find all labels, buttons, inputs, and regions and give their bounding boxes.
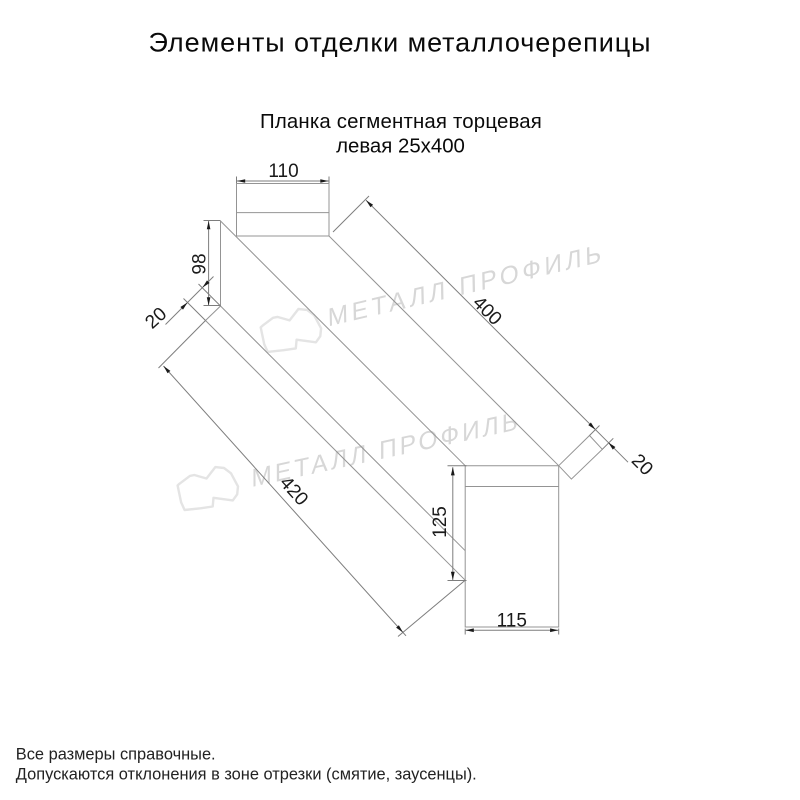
svg-text:Все размеры справочные.: Все размеры справочные. xyxy=(16,745,216,763)
svg-text:Допускаются отклонения в зоне: Допускаются отклонения в зоне отрезки (с… xyxy=(16,765,477,783)
svg-text:98: 98 xyxy=(190,253,211,274)
svg-text:левая 25х400: левая 25х400 xyxy=(336,136,465,158)
svg-text:Элементы отделки металлочерепи: Элементы отделки металлочерепицы xyxy=(148,28,651,58)
svg-text:115: 115 xyxy=(497,611,527,632)
svg-text:Планка сегментная торцевая: Планка сегментная торцевая xyxy=(260,111,542,133)
svg-text:125: 125 xyxy=(430,506,451,538)
svg-text:110: 110 xyxy=(268,161,298,182)
